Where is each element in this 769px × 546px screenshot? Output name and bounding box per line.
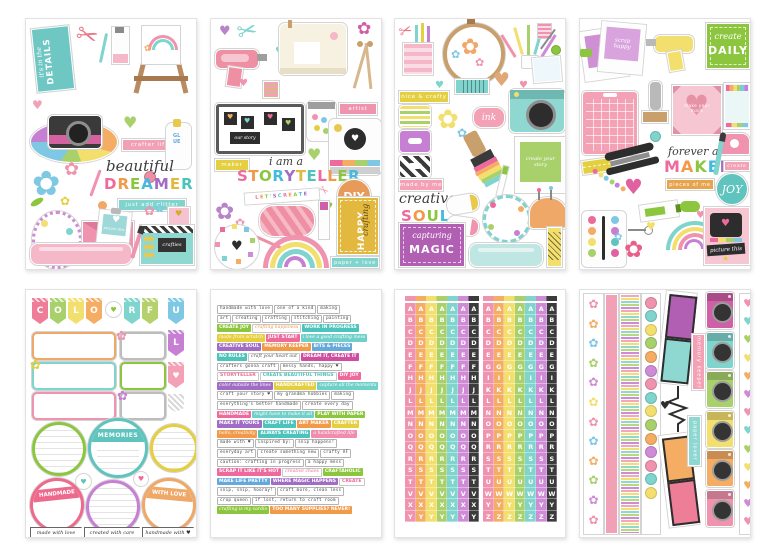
word-sticker: MAKE LIFE PRETTY xyxy=(217,478,270,486)
flower-icon: ✿ xyxy=(585,295,602,315)
word-sticker: a handcrafted life xyxy=(311,430,356,438)
heart-icon: ♥ xyxy=(493,71,510,90)
alphabet-letter-sticker: E xyxy=(494,349,505,361)
alphabet-letter-sticker: J xyxy=(469,384,480,396)
crafties-chalk-label: crafties xyxy=(158,238,186,252)
easel-sticker: ✿ xyxy=(132,24,190,98)
button-icon xyxy=(645,351,657,363)
alphabet-letter-sticker: N xyxy=(458,418,469,430)
flower-icon: ✿ xyxy=(585,315,602,335)
alphabet-letter-sticker: G xyxy=(515,361,526,373)
flower-icon: ✿ xyxy=(451,49,460,60)
glue-pen-icon xyxy=(319,201,329,239)
alphabet-letter-sticker: K xyxy=(515,384,526,396)
alphabet-letter-sticker: B xyxy=(437,315,448,327)
nice-crafty-label: nice & crafty xyxy=(399,91,449,103)
alphabet-letter-sticker: V xyxy=(447,488,458,500)
polaroid-stack-sticker: ♥ scrap happy xyxy=(582,23,648,85)
alphabet-letter-sticker: W xyxy=(515,488,526,500)
journaling-label: ✿ xyxy=(120,332,166,360)
word-sticker: CREATIVE SOUL xyxy=(217,343,261,351)
flower-icon: ✿ xyxy=(357,21,371,38)
heart-icon: ♥ xyxy=(646,221,656,232)
alphabet-letter-sticker: X xyxy=(458,499,469,511)
flower-icon: ✿ xyxy=(60,195,70,207)
word-sticker-row: crop queenif lost, return to craft room xyxy=(217,497,377,507)
polaroid: scrap happy xyxy=(598,21,646,75)
washi-roll xyxy=(399,130,431,153)
striped-pennant-sticker xyxy=(168,394,184,412)
alphabet-letter-sticker: R xyxy=(525,442,536,454)
button-icon xyxy=(645,473,657,485)
camera-sticker xyxy=(706,450,734,487)
camera-sticker xyxy=(706,292,734,329)
word-sticker: TOO MANY SUPPLIES? NEVER! xyxy=(270,506,352,514)
heart-icon: ♥ xyxy=(32,99,43,111)
word-sticker: create every day xyxy=(302,401,353,410)
word-sticker: PLAY WITH PAPER xyxy=(315,411,365,419)
alphabet-letter-sticker: Y xyxy=(483,499,494,511)
alphabet-letter-sticker: E xyxy=(437,349,448,361)
heart-icon: ♥ xyxy=(227,114,233,121)
filmstrip-top-sticker xyxy=(657,291,696,386)
heart-icon: ♥ xyxy=(741,477,751,495)
alphabet-letter-sticker: S xyxy=(483,453,494,465)
alphabet-letter-sticker: V xyxy=(437,488,448,500)
alphabet-letter-sticker: N xyxy=(447,418,458,430)
pennant-letter-sticker: L xyxy=(68,298,84,324)
alphabet-letter-sticker: A xyxy=(469,303,480,315)
word-sticker: one of a kind xyxy=(274,305,316,314)
sticker-sheet-4: ♥ scrap happy create DAILY xyxy=(579,18,751,270)
alphabet-letter-sticker: T xyxy=(437,476,448,488)
alphabet-letter-sticker: D xyxy=(515,338,526,350)
alphabet-letter-sticker: O xyxy=(525,418,536,430)
alphabet-letter-sticker: T xyxy=(416,476,427,488)
sticker-sheet-1: it's in the DETAILS ✂ ✿ ♥ xyxy=(25,18,197,270)
sticker-sheet-6: handmade with loveone of a kindmakingart… xyxy=(210,289,382,538)
alphabet-letter-sticker: Y xyxy=(416,511,427,523)
alphabet-letter-sticker: N xyxy=(483,407,494,419)
alphabet-letter-sticker: M xyxy=(426,407,437,419)
word-sticker: craft more, clean less xyxy=(277,487,344,496)
button-icon xyxy=(645,405,657,417)
alphabet-letter-sticker: E xyxy=(405,349,416,361)
word-sticker-row: caution: crafting in progressa happy mes… xyxy=(217,459,377,469)
paper-lover-label: paper lover xyxy=(688,416,701,466)
heart-icon: ♥ xyxy=(741,459,751,477)
alphabet-letter-sticker: P xyxy=(504,430,515,442)
word-sticker: CREATE xyxy=(339,478,365,487)
heart-icon: ♥ xyxy=(741,295,751,313)
alphabet-letter-sticker: G xyxy=(504,361,515,373)
word-sticker: might have to make it all xyxy=(252,411,314,419)
word-sticker: i love a good crafting mess xyxy=(301,334,368,342)
sticker-sheet-8: ✿✿✿✿✿✿✿✿✿✿✿✿ ♥ memory keeper paper lover… xyxy=(579,289,751,538)
word-sticker: inspired by: xyxy=(255,439,294,448)
word-sticker-row: crafting is my cardioTOO MANY SUPPLIES? … xyxy=(217,506,377,516)
alphabet-letter-sticker: I xyxy=(536,372,547,384)
heart-icon: ♥ xyxy=(741,313,751,331)
word-sticker: crop queen xyxy=(217,497,251,506)
alphabet-letter-sticker: R xyxy=(483,442,494,454)
pink-border-sticker xyxy=(605,294,618,534)
capturing-script-text: capturing xyxy=(400,231,464,240)
camera-border-column xyxy=(706,292,736,529)
hearts-border-sticker: ♥♥♥♥♥♥♥♥♥♥♥♥♥ xyxy=(740,294,751,534)
alphabet-letter-sticker: E xyxy=(547,349,558,361)
camera-sticker xyxy=(706,411,734,448)
alphabet-letter-sticker: A xyxy=(547,303,558,315)
alphabet-letter-sticker: D xyxy=(469,338,480,350)
scrap-happy-text: scrap happy xyxy=(604,27,641,62)
button-icon xyxy=(645,392,657,404)
alphabet-letter-sticker: D xyxy=(536,338,547,350)
alphabet-letter-sticker: S xyxy=(437,465,448,477)
word-sticker: if lost, return to craft room xyxy=(252,497,339,506)
sticker-sheet-7: AAAAAAABBBBBBBCCCCCCCDDDDDDDEEEEEEEFFFFF… xyxy=(394,289,566,538)
alphabet-letter-sticker: I xyxy=(515,372,526,384)
handmade-with-flag: handmade with ♥ xyxy=(142,527,194,538)
sticky-note-sticker xyxy=(532,56,562,83)
pencil-cup xyxy=(403,43,433,75)
memory-keeper-label: memory keeper xyxy=(692,334,705,390)
alphabet-letter-sticker: N xyxy=(405,418,416,430)
alphabet-letter-sticker: U xyxy=(525,476,536,488)
alphabet-letter-sticker: K xyxy=(547,384,558,396)
alphabet-letter-sticker: R xyxy=(405,453,416,465)
alphabet-letter-sticker: Z xyxy=(483,511,494,523)
word-sticker-row: everyday artcreate something newcrafty A… xyxy=(217,449,377,459)
alphabet-letter-sticker: Y xyxy=(547,499,558,511)
camera-flash-dot xyxy=(728,295,731,298)
alphabet-letter-sticker: C xyxy=(426,326,437,338)
alphabet-letter-sticker: J xyxy=(416,384,427,396)
word-sticker: snip happens! xyxy=(295,439,337,448)
alphabet-letter-sticker: A xyxy=(504,303,515,315)
alphabet-letter-sticker: W xyxy=(483,488,494,500)
make-your-mark-sticker: ♥ make your mark xyxy=(672,85,722,135)
alphabet-letter-sticker: Y xyxy=(536,499,547,511)
alphabet-letter-sticker: C xyxy=(515,326,526,338)
alphabet-letter-sticker: B xyxy=(405,315,416,327)
paint-tube-sticker xyxy=(112,27,129,64)
button-icon xyxy=(645,324,657,336)
alphabet-letter-sticker: D xyxy=(504,338,515,350)
paint-tube-sticker xyxy=(639,200,679,221)
alphabet-letter-sticker: U xyxy=(536,476,547,488)
alphabet-letter-sticker: H xyxy=(469,372,480,384)
alphabet-letter-sticker: Y xyxy=(525,499,536,511)
alphabet-letter-sticker: K xyxy=(504,384,515,396)
alphabet-letter-sticker: M xyxy=(469,407,480,419)
circle-label xyxy=(150,424,197,472)
circle-label xyxy=(86,480,140,534)
heart-pennant-sticker: ♥ xyxy=(168,362,184,388)
alphabet-letter-sticker: O xyxy=(504,418,515,430)
alphabet-grid-right: AAAAAAABBBBBBBCCCCCCCDDDDDDDEEEEEEEGGGGG… xyxy=(483,303,557,522)
word-sticker: craft your heart out xyxy=(248,353,300,362)
alphabet-letter-sticker: X xyxy=(426,499,437,511)
embroidery-floss-icon xyxy=(455,79,489,94)
picture-this-text: picture this xyxy=(102,226,126,232)
heart-icon: ♥ xyxy=(741,331,751,349)
alphabet-letter-sticker: R xyxy=(547,442,558,454)
alphabet-letter-sticker: H xyxy=(458,372,469,384)
alphabet-letter-sticker: N xyxy=(469,418,480,430)
alphabet-letter-sticker: Z xyxy=(536,511,547,523)
word-sticker: making xyxy=(317,305,340,314)
alphabet-letter-sticker: N xyxy=(515,407,526,419)
alphabet-letter-sticker: F xyxy=(426,361,437,373)
flower-icon: ✿ xyxy=(155,203,164,214)
alphabet-letter-sticker: S xyxy=(426,465,437,477)
alphabet-letter-sticker: J xyxy=(458,384,469,396)
glue-bottle-text: GLUE xyxy=(173,133,182,146)
alphabet-letter-sticker: T xyxy=(426,476,437,488)
alphabet-letter-sticker: S xyxy=(504,453,515,465)
camera-sticker xyxy=(706,371,734,408)
camera-lens-heart: ♥ xyxy=(344,128,366,150)
journaling-label xyxy=(120,362,166,390)
word-sticker: hello, creativity xyxy=(217,430,257,438)
alphabet-letter-sticker: J xyxy=(405,384,416,396)
alphabet-letter-sticker: F xyxy=(416,361,427,373)
create-script-text: create xyxy=(707,32,749,42)
alphabet-letter-sticker: L xyxy=(483,395,494,407)
alphabet-letter-sticker: D xyxy=(416,338,427,350)
sticker-sheets-product-image: it's in the DETAILS ✂ ✿ ♥ xyxy=(0,0,769,546)
alphabet-letter-sticker: R xyxy=(458,453,469,465)
alphabet-letter-sticker: Y xyxy=(504,499,515,511)
word-sticker-row: SCRAP IT LIKE IT'S HOTcreative chaosCRAF… xyxy=(217,468,377,478)
word-sticker: crafty AF xyxy=(320,449,351,458)
alphabet-letter-sticker: Z xyxy=(515,511,526,523)
alphabet-letter-sticker: B xyxy=(494,315,505,327)
flower-icon: ✿ xyxy=(475,57,484,68)
flower-icon: ✿ xyxy=(585,334,602,354)
word-sticker: CRAFT LIFE xyxy=(263,420,296,428)
alphabet-letter-sticker: O xyxy=(547,418,558,430)
camera-lens xyxy=(712,421,733,442)
alphabet-letter-sticker: T xyxy=(483,465,494,477)
made-by-me-label: made by me xyxy=(399,179,443,191)
camera-flash-dot xyxy=(728,453,731,456)
flower-icon: ✿ xyxy=(585,511,602,531)
alphabet-letter-sticker: L xyxy=(447,395,458,407)
word-sticker: HANDMADE xyxy=(217,411,251,419)
alphabet-letter-sticker: B xyxy=(536,315,547,327)
alphabet-letter-sticker: I xyxy=(547,372,558,384)
alphabet-letter-sticker: S xyxy=(447,465,458,477)
heart-icon: ♥ xyxy=(231,240,243,253)
button-icon xyxy=(645,433,657,445)
word-sticker: creating xyxy=(232,315,260,324)
alphabet-letter-sticker: F xyxy=(405,361,416,373)
alphabet-letter-sticker: X xyxy=(416,499,427,511)
camera-lens xyxy=(712,460,733,481)
alphabet-letter-sticker: V xyxy=(426,488,437,500)
alphabet-letter-sticker: N xyxy=(416,418,427,430)
alphabet-letter-sticker: U xyxy=(515,476,526,488)
alphabet-letter-sticker: F xyxy=(447,361,458,373)
heart-icon: ♥ xyxy=(741,350,751,368)
word-sticker-row: STORYTELLERCREATE BEAUTIFUL THINGSDIY JO… xyxy=(217,372,377,382)
flower-icon: ✿ xyxy=(117,390,128,403)
alphabet-letter-sticker: I xyxy=(504,372,515,384)
alphabet-letter-sticker: E xyxy=(515,349,526,361)
alphabet-letter-sticker: N xyxy=(426,418,437,430)
alphabet-letter-sticker: P xyxy=(483,430,494,442)
word-sticker: made with ♥ xyxy=(217,439,254,448)
alphabet-letter-sticker: A xyxy=(483,303,494,315)
alphabet-letter-sticker: H xyxy=(416,372,427,384)
alphabet-letter-sticker: O xyxy=(536,418,547,430)
alphabet-letter-sticker: G xyxy=(536,361,547,373)
flower-icon: ✿ xyxy=(32,167,61,201)
alphabet-letter-sticker: P xyxy=(515,430,526,442)
create-daily-sticker: create DAILY xyxy=(706,23,750,69)
washi-tape-stack-sticker xyxy=(399,105,433,179)
word-sticker: everything's better handmade xyxy=(217,401,301,410)
paper-love-label: paper + love xyxy=(331,257,379,268)
heart-icon: ♥ xyxy=(741,404,751,422)
alphabet-letter-sticker: C xyxy=(483,326,494,338)
alphabet-letter-sticker: L xyxy=(504,395,515,407)
alphabet-letter-sticker: G xyxy=(525,361,536,373)
flower-icon: ✿ xyxy=(144,45,152,54)
flower-icon: ✿ xyxy=(215,201,234,224)
word-sticker-row: handmade with loveone of a kindmaking xyxy=(217,305,377,315)
word-sticker-row: HANDMADEmight have to make it allPLAY WI… xyxy=(217,411,377,421)
word-sticker: JUST START xyxy=(266,334,300,342)
alphabet-letter-sticker: R xyxy=(437,453,448,465)
dreamer-colorword: DREAMER xyxy=(104,175,194,193)
alphabet-letter-sticker: R xyxy=(416,453,427,465)
alphabet-letter-sticker: O xyxy=(447,430,458,442)
heart-icon: ♥ xyxy=(435,81,444,91)
camera-sticker xyxy=(706,490,734,527)
alphabet-letter-sticker: T xyxy=(536,465,547,477)
alphabet-letter-sticker: B xyxy=(515,315,526,327)
glue-gun-body xyxy=(215,49,259,69)
pincushion-sticker xyxy=(529,197,566,229)
sewing-machine-sticker xyxy=(279,23,347,75)
word-sticker: STORYTELLER xyxy=(217,372,259,381)
alphabet-letter-sticker: G xyxy=(547,361,558,373)
alphabet-letter-sticker: M xyxy=(405,407,416,419)
word-sticker: my grandma hobbies xyxy=(274,391,330,400)
alphabet-letter-sticker: U xyxy=(483,476,494,488)
scissors-icon: ✂ xyxy=(235,18,260,45)
word-sticker: crafting is my cardio xyxy=(217,506,269,514)
heart-icon: ♥ xyxy=(111,216,120,226)
alphabet-letter-sticker: B xyxy=(416,315,427,327)
word-sticker: DREAM IT, CREATE IT xyxy=(301,353,359,361)
alphabet-letter-sticker: L xyxy=(437,395,448,407)
heart-icon: ♥ xyxy=(307,147,321,163)
heart-icon: ♥ xyxy=(741,368,751,386)
word-sticker: making xyxy=(331,391,354,400)
alphabet-letter-sticker: N xyxy=(536,407,547,419)
button-icon xyxy=(645,460,657,472)
lets-create-banner: LET'S CREATE xyxy=(245,188,320,204)
word-sticker: WORK IN PROGRESS xyxy=(302,324,359,332)
alphabet-letter-sticker: H xyxy=(405,372,416,384)
alphabet-letter-sticker: K xyxy=(494,384,505,396)
alphabet-letter-sticker: O xyxy=(426,430,437,442)
word-sticker: ART MAKER xyxy=(297,420,331,428)
pennant-letter-sticker: O xyxy=(50,298,66,324)
alphabet-letter-sticker: P xyxy=(536,430,547,442)
pennant-letter-sticker: R xyxy=(124,298,140,324)
alphabet-letter-sticker: D xyxy=(437,338,448,350)
alphabet-letter-sticker: L xyxy=(426,395,437,407)
stamp-base xyxy=(642,111,668,123)
word-sticker: a happy mess xyxy=(305,459,344,468)
heart-icon: ♥ xyxy=(123,115,137,131)
alphabet-letter-sticker: Z xyxy=(504,511,515,523)
alphabet-letter-sticker: R xyxy=(494,442,505,454)
camera-body xyxy=(48,115,102,149)
alphabet-letter-sticker: O xyxy=(416,430,427,442)
alphabet-letter-sticker: R xyxy=(447,453,458,465)
alphabet-letter-sticker: A xyxy=(416,303,427,315)
alphabet-letter-sticker: L xyxy=(494,395,505,407)
heart-icon: ♥ xyxy=(660,400,670,411)
alphabet-letter-sticker: B xyxy=(483,315,494,327)
alphabet-letter-sticker: R xyxy=(469,453,480,465)
make-your-mark-text: make your mark xyxy=(679,103,715,113)
alphabet-letter-sticker: Y xyxy=(426,511,437,523)
with-love-banner: WITH LOVE xyxy=(145,486,194,502)
flower-icon: ✿ xyxy=(585,393,602,413)
alphabet-letter-sticker: X xyxy=(405,499,416,511)
alphabet-letter-sticker: V xyxy=(469,488,480,500)
alphabet-letter-sticker: E xyxy=(504,349,515,361)
alphabet-letter-sticker: N xyxy=(525,407,536,419)
button-icon xyxy=(645,378,657,390)
flower-icon: ✿ xyxy=(585,432,602,452)
alphabet-letter-sticker: A xyxy=(458,303,469,315)
scissors-icon: ✂ xyxy=(73,20,102,51)
alphabet-letter-sticker: Z xyxy=(494,511,505,523)
alphabet-letter-sticker: E xyxy=(525,349,536,361)
button-icon xyxy=(645,337,657,349)
alphabet-letter-sticker: T xyxy=(494,465,505,477)
crafties-box: crafties xyxy=(140,225,194,265)
floss-bobbin-icon xyxy=(547,227,562,267)
camera-lens xyxy=(712,302,733,323)
journaling-label: ✿ xyxy=(32,362,116,390)
alphabet-letter-sticker: D xyxy=(447,338,458,350)
stamp-handle xyxy=(649,81,662,111)
alphabet-letter-sticker: L xyxy=(547,395,558,407)
alphabet-letter-sticker: R xyxy=(515,442,526,454)
alpha-top-strip xyxy=(405,296,479,301)
heart-icon: ♥ xyxy=(741,422,751,440)
alphabet-letter-sticker: I xyxy=(494,372,505,384)
alphabet-letter-sticker: J xyxy=(437,384,448,396)
alphabet-letter-sticker: S xyxy=(469,465,480,477)
word-sticker-row: CREATE JOYcrafting happinessWORK IN PROG… xyxy=(217,324,377,334)
alphabet-letter-sticker: L xyxy=(458,395,469,407)
journaling-label: ✿ xyxy=(120,392,166,420)
alphabet-letter-sticker: J xyxy=(447,384,458,396)
word-sticker: art xyxy=(217,315,231,324)
alphabet-letter-sticker: L xyxy=(515,395,526,407)
heart-icon: ♥ xyxy=(175,210,182,218)
